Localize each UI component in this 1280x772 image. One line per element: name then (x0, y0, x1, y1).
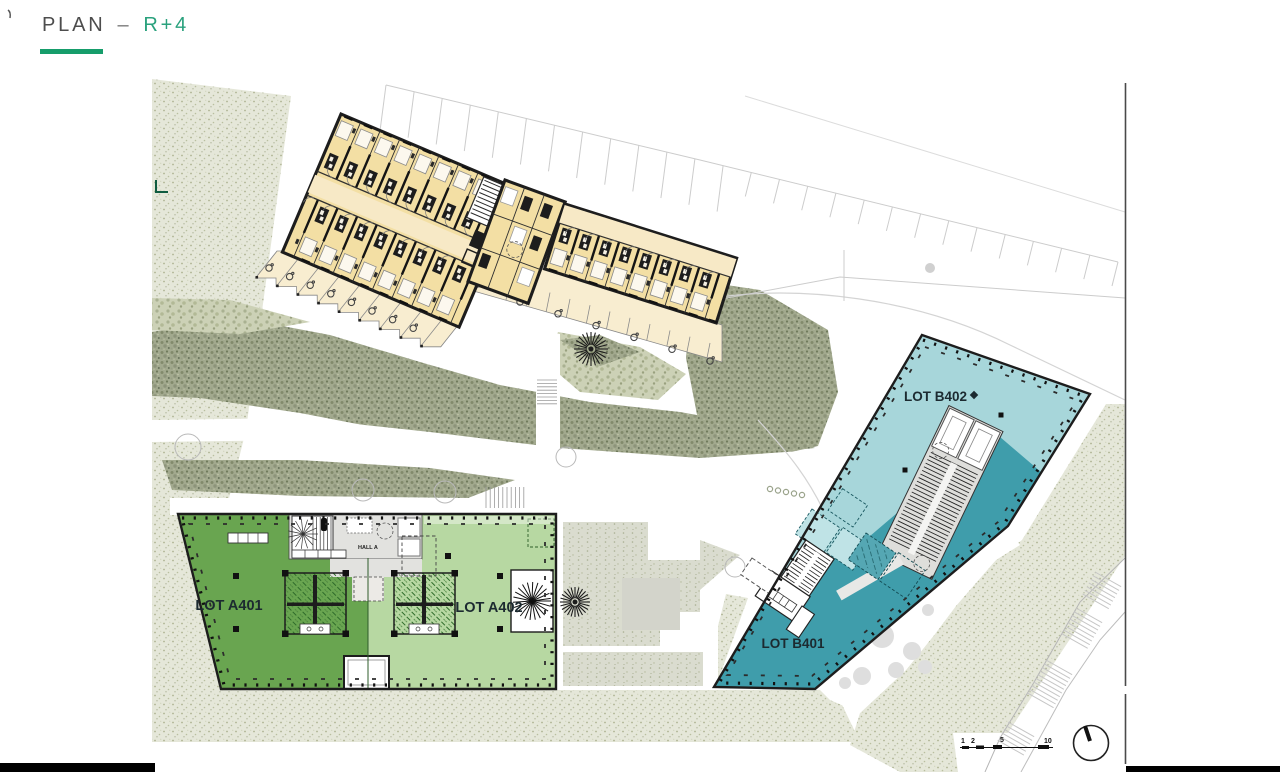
svg-text:HALL A: HALL A (358, 545, 378, 551)
svg-text:LOT A402: LOT A402 (455, 600, 522, 616)
svg-text:LOT A401: LOT A401 (195, 598, 262, 614)
svg-text:5: 5 (1000, 737, 1004, 744)
svg-text:1: 1 (961, 738, 965, 745)
svg-text:LOT B402: LOT B402 (904, 389, 967, 404)
svg-text:2: 2 (971, 738, 975, 745)
svg-text:10: 10 (1044, 738, 1052, 745)
svg-text:LOT B401: LOT B401 (761, 636, 825, 651)
